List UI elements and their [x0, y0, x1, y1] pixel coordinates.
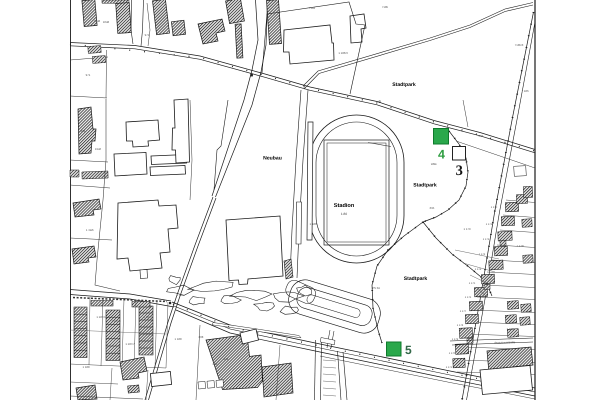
svg-text:1 187/7: 1 187/7 [125, 342, 135, 346]
svg-text:4: 4 [438, 148, 445, 162]
svg-text:1 176: 1 176 [465, 296, 472, 299]
svg-text:1 170: 1 170 [449, 352, 456, 355]
svg-text:7 193: 7 193 [507, 327, 514, 331]
svg-text:1 177: 1 177 [460, 310, 467, 313]
svg-text:Stadtpark: Stadtpark [404, 276, 428, 282]
svg-text:808: 808 [199, 335, 204, 339]
svg-text:7185: 7185 [382, 5, 389, 9]
svg-text:1 187/1: 1 187/1 [143, 315, 153, 319]
svg-text:Stadion: Stadion [334, 202, 355, 209]
svg-text:7185/3: 7185/3 [515, 43, 524, 47]
svg-text:Stadtpark: Stadtpark [413, 183, 437, 189]
svg-text:1 1WF: 1 1WF [86, 228, 95, 232]
svg-text:1 172: 1 172 [483, 238, 490, 241]
svg-text:1 171: 1 171 [486, 223, 493, 226]
svg-text:864: 864 [81, 129, 86, 133]
svg-text:Stadtpark: Stadtpark [392, 82, 416, 88]
svg-text:971: 971 [86, 73, 91, 77]
svg-text:1 179: 1 179 [452, 338, 459, 341]
svg-text:WBF: WBF [431, 162, 438, 166]
svg-text:7 178: 7 178 [517, 244, 524, 248]
svg-text:695: 695 [479, 134, 484, 138]
svg-text:1946: 1946 [95, 147, 102, 151]
svg-text:802: 802 [213, 362, 218, 366]
svg-text:1 187/1: 1 187/1 [96, 315, 106, 319]
svg-text:7 186: 7 186 [522, 89, 529, 93]
svg-text:1048: 1048 [94, 19, 101, 23]
svg-text:1 173: 1 173 [479, 253, 486, 256]
svg-text:-6: -6 [377, 99, 381, 104]
svg-text:1 187: 1 187 [177, 293, 184, 297]
svg-text:1048: 1048 [103, 20, 110, 24]
svg-text:Neubau: Neubau [263, 156, 282, 162]
svg-text:1 171: 1 171 [446, 366, 453, 369]
svg-text:84a: 84a [224, 357, 229, 361]
svg-text:1 186/3: 1 186/3 [338, 51, 348, 55]
svg-text:1 188: 1 188 [175, 337, 182, 341]
svg-text:1 170: 1 170 [491, 206, 498, 209]
svg-text:1 179: 1 179 [464, 227, 471, 231]
svg-text:1 187/8: 1 187/8 [111, 319, 121, 323]
svg-text:Pestalozzistraße: Pestalozzistraße [495, 340, 516, 345]
svg-text:1:80: 1:80 [341, 212, 347, 216]
svg-text:695: 695 [430, 206, 435, 210]
svg-text:1 174: 1 174 [475, 268, 482, 271]
svg-text:PS 04: PS 04 [372, 286, 380, 290]
svg-text:1 180: 1 180 [310, 222, 317, 226]
svg-text:1 178: 1 178 [457, 324, 464, 327]
svg-text:5: 5 [405, 343, 412, 357]
svg-text:1 175: 1 175 [469, 282, 476, 285]
svg-text:971: 971 [145, 33, 150, 37]
svg-text:3: 3 [456, 163, 463, 179]
svg-text:7183: 7183 [309, 6, 316, 10]
svg-text:1 188: 1 188 [83, 365, 90, 369]
